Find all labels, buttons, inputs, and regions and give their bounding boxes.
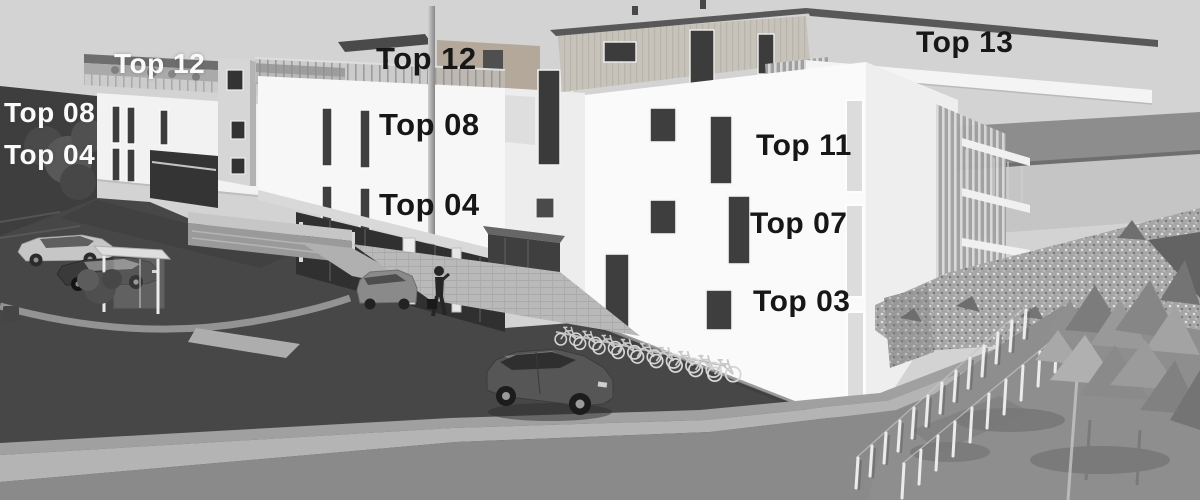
unit-label-top-13[interactable]: Top 13 <box>916 28 1013 58</box>
unit-label-top-04-center[interactable]: Top 04 <box>379 189 480 220</box>
stair-tower <box>218 58 256 186</box>
unit-label-top-08-center[interactable]: Top 08 <box>379 109 480 140</box>
unit-label-top-11[interactable]: Top 11 <box>756 131 852 161</box>
unit-label-top-12-left[interactable]: Top 12 <box>114 50 205 78</box>
unit-label-top-12-center[interactable]: Top 12 <box>376 43 477 74</box>
unit-label-top-07[interactable]: Top 07 <box>750 209 847 239</box>
rendering-stage: Top 12 Top 08 Top 04 Top 12 Top 08 Top 0… <box>0 0 1200 500</box>
unit-label-top-08-left[interactable]: Top 08 <box>4 99 95 127</box>
unit-label-top-03[interactable]: Top 03 <box>753 287 850 317</box>
unit-label-top-04-left[interactable]: Top 04 <box>4 141 95 169</box>
